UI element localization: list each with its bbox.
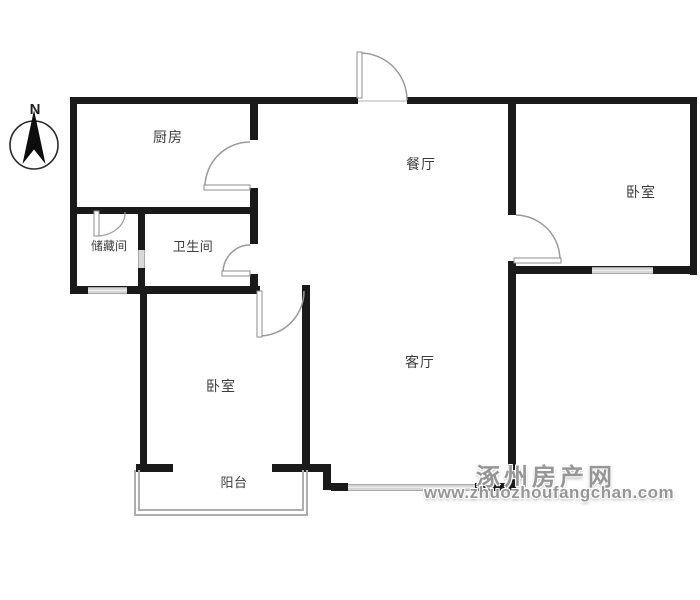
floorplan: N 厨房 餐厅 卧室 储藏间 卫生间 客厅 卧室 阳台 涿州房产网 www.zh… (0, 0, 700, 600)
room-label-balcony: 阳台 (212, 476, 256, 490)
room-label-bedroom-left: 卧室 (199, 379, 243, 394)
room-label-bathroom: 卫生间 (170, 240, 216, 254)
room-label-living: 客厅 (398, 355, 442, 370)
bathroom-door (222, 245, 250, 276)
compass-north-label: N (21, 101, 49, 118)
room-label-bedroom-right: 卧室 (619, 185, 663, 200)
bedroom-left-door (257, 291, 304, 337)
compass-icon (10, 110, 58, 169)
doors-and-compass-layer (0, 0, 700, 600)
room-label-dining: 餐厅 (399, 157, 443, 172)
room-label-storage: 储藏间 (85, 240, 133, 253)
kitchen-door (204, 142, 250, 190)
watermark-website: www.zhuozhoufangchan.com (418, 483, 680, 503)
room-label-kitchen: 厨房 (146, 130, 190, 145)
storage-door (94, 211, 125, 236)
bedroom-right-door (514, 215, 561, 263)
entrance-door (357, 52, 407, 100)
